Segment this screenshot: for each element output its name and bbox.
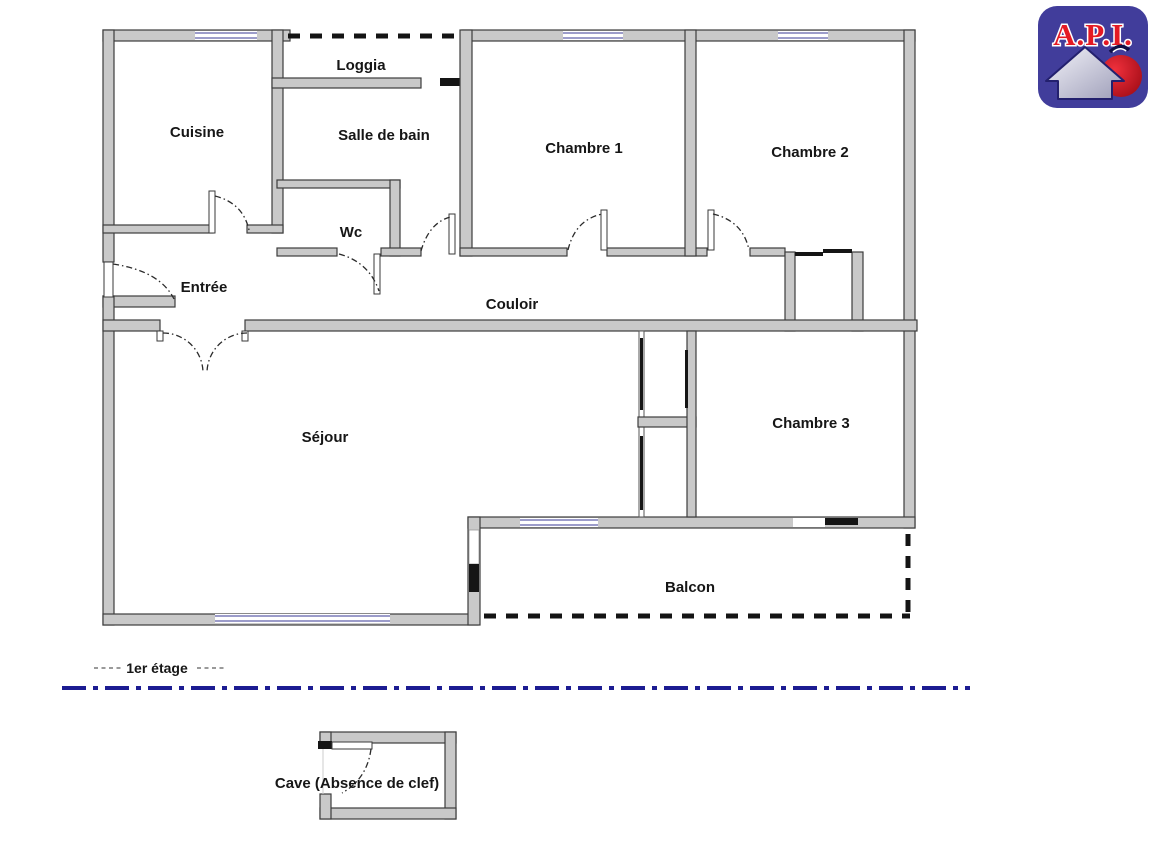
entrance-door-arc bbox=[113, 264, 174, 299]
cave-plan: Cave (Absence de clef) bbox=[275, 732, 456, 819]
entrance-door-opening bbox=[104, 262, 113, 297]
chambre-1-door-leaf bbox=[601, 210, 607, 250]
salle-de-bain-door-arc bbox=[421, 217, 450, 251]
chambre-2-door-arc bbox=[713, 214, 749, 250]
wall-segment bbox=[245, 320, 917, 331]
wall-segment bbox=[750, 248, 785, 256]
floor-plan-canvas: Cuisine Loggia Salle de bain Chambre 1 C… bbox=[0, 0, 1152, 847]
chambre-2-door-leaf bbox=[708, 210, 714, 250]
wall-segment bbox=[460, 248, 567, 256]
room-label-chambre-1: Chambre 1 bbox=[545, 140, 623, 157]
hall-closet-wall bbox=[785, 252, 795, 331]
room-label-balcon: Balcon bbox=[665, 579, 715, 596]
floor-caption: 1er étage bbox=[94, 660, 225, 676]
hall-closet-door-bar bbox=[795, 252, 823, 256]
room-label-loggia: Loggia bbox=[336, 57, 386, 74]
cave-door-leaf bbox=[332, 742, 372, 749]
chambre-1-door-arc bbox=[568, 214, 602, 250]
wall-segment bbox=[381, 248, 421, 256]
cuisine-door-arc bbox=[215, 196, 249, 230]
window-cuisine bbox=[195, 31, 257, 40]
room-label-sejour: Séjour bbox=[302, 429, 349, 446]
cave-label: Cave (Absence de clef) bbox=[275, 775, 439, 792]
closet-door-bar bbox=[640, 338, 643, 410]
sejour-double-door-arc bbox=[207, 333, 247, 373]
wall-segment bbox=[103, 320, 160, 331]
room-label-chambre-3: Chambre 3 bbox=[772, 415, 850, 432]
wall-segment bbox=[103, 296, 114, 625]
closet-door-bar bbox=[685, 350, 688, 408]
api-logo: A.P.I. bbox=[1038, 6, 1148, 108]
room-label-chambre-2: Chambre 2 bbox=[771, 144, 849, 161]
wall-segment bbox=[277, 248, 337, 256]
wall-segment bbox=[904, 30, 915, 528]
wall-segment bbox=[687, 331, 696, 517]
balcony-boundary-dashes bbox=[484, 534, 910, 616]
floor-label: 1er étage bbox=[126, 660, 188, 676]
hall-closet-wall bbox=[852, 252, 863, 331]
room-label-wc: Wc bbox=[340, 224, 363, 241]
wall-segment bbox=[277, 180, 400, 188]
closet-door-bar bbox=[640, 436, 643, 510]
window-chambre-2 bbox=[778, 31, 828, 40]
room-label-entree: Entrée bbox=[181, 279, 228, 296]
sejour-double-door-post bbox=[157, 331, 163, 341]
wall-segment bbox=[320, 732, 456, 743]
window-balcony-wall bbox=[520, 518, 598, 527]
wc-door-leaf bbox=[374, 254, 380, 294]
wall-segment bbox=[445, 732, 456, 819]
wall-segment bbox=[103, 225, 213, 233]
wall-segment bbox=[320, 808, 456, 819]
window-sejour bbox=[215, 614, 390, 623]
hall-closet-door-bar bbox=[823, 249, 852, 253]
sejour-double-door-arc bbox=[163, 333, 203, 373]
wall-segment bbox=[272, 30, 283, 233]
wc-door-arc bbox=[339, 254, 379, 291]
salle-de-bain-door-leaf bbox=[449, 214, 455, 254]
balcony-side-window bbox=[469, 530, 479, 564]
room-label-cuisine: Cuisine bbox=[170, 124, 224, 141]
cuisine-door-leaf bbox=[209, 191, 215, 233]
walls bbox=[103, 30, 917, 625]
wall-segment bbox=[685, 30, 696, 256]
wall-segment bbox=[390, 180, 400, 256]
wall-segment bbox=[247, 225, 283, 233]
room-label-salle-de-bain: Salle de bain bbox=[338, 127, 430, 144]
wall-segment bbox=[460, 30, 472, 256]
room-label-couloir: Couloir bbox=[486, 296, 539, 313]
balcony-side-door-bar bbox=[469, 564, 479, 592]
window-chambre-1 bbox=[563, 31, 623, 40]
cave-door-bar bbox=[318, 741, 332, 749]
wall-segment bbox=[320, 794, 331, 819]
floor-1-plan: Cuisine Loggia Salle de bain Chambre 1 C… bbox=[94, 30, 917, 676]
wall-segment bbox=[272, 78, 421, 88]
loggia-door-bar bbox=[440, 78, 462, 86]
